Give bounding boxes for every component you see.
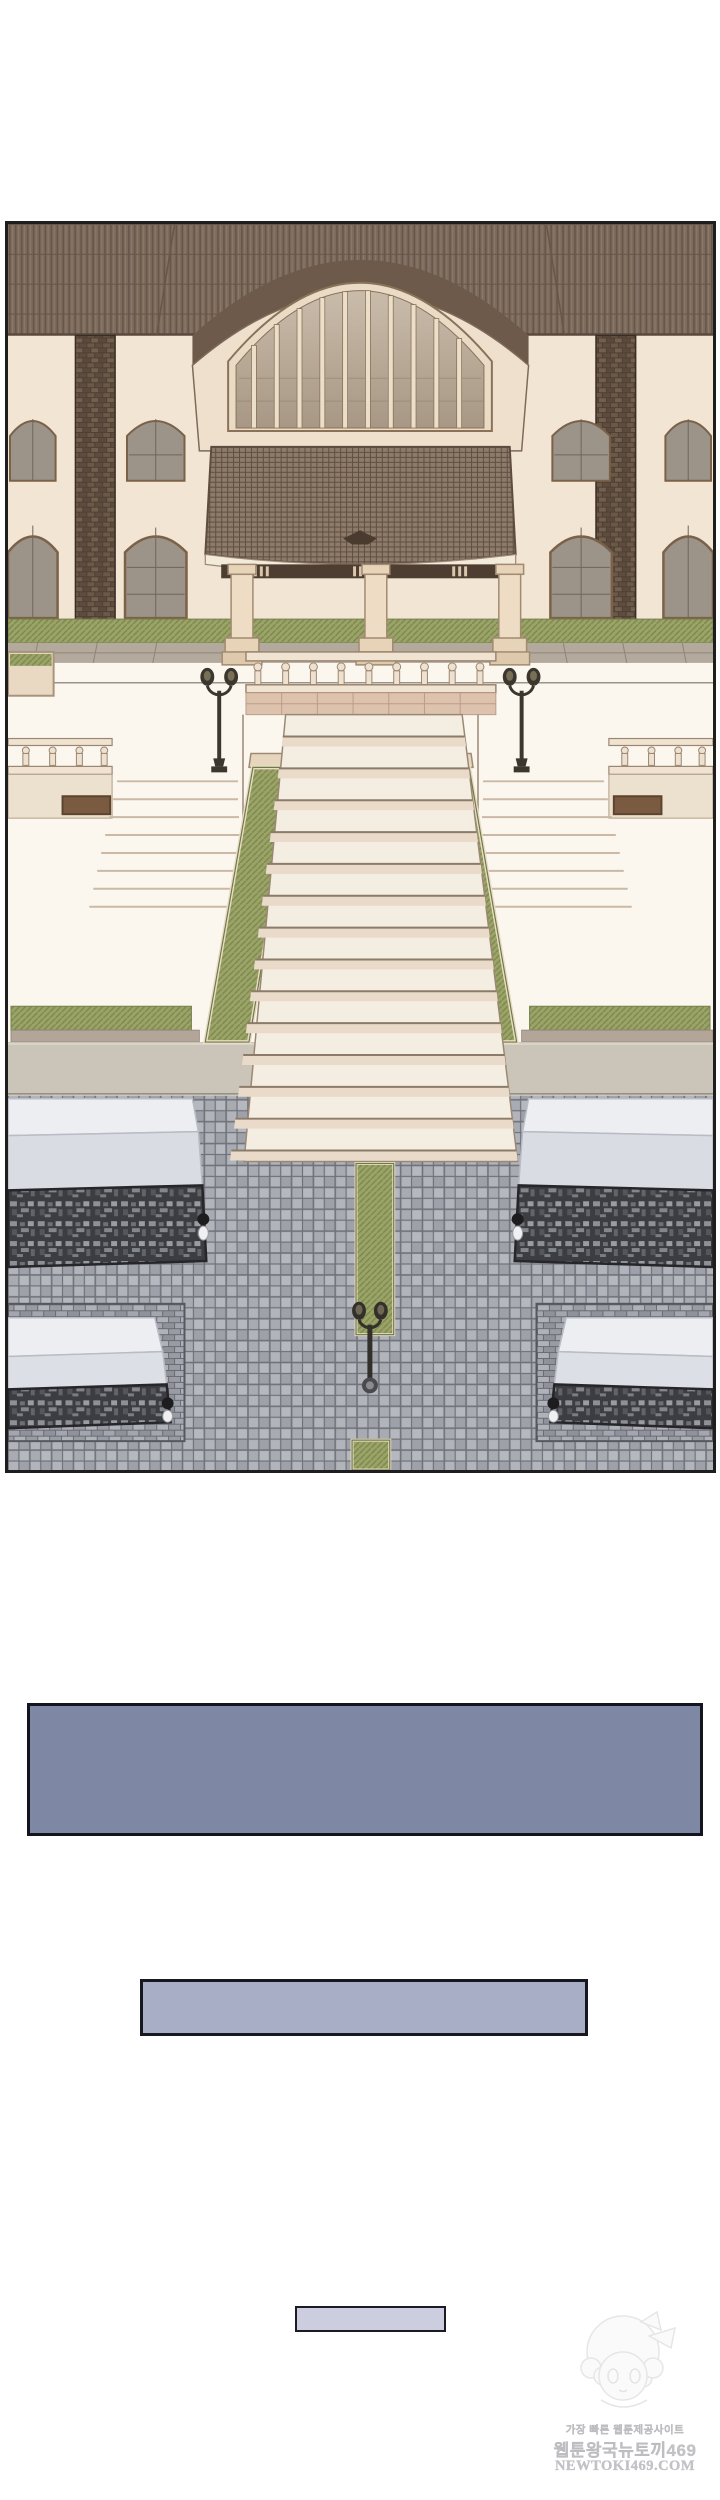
watermark-tagline: 가장 빠른 웹툰제공사이트 — [545, 2422, 705, 2437]
site-watermark: 가장 빠른 웹툰제공사이트 웹툰왕국뉴토끼469 NEWTOKI469.COM — [545, 2310, 710, 2490]
watermark-domain: NEWTOKI469.COM — [545, 2458, 705, 2475]
wooden-bench-left — [63, 796, 111, 814]
scene-box-large — [27, 1703, 703, 1836]
scene-box-small — [295, 2306, 446, 2332]
webtoon-page: { "panel": { "label": "courtyard-illustr… — [0, 0, 720, 2500]
watermark-mascot-art — [545, 2310, 705, 2430]
planter-bench-lower-left — [8, 1304, 184, 1441]
canopy-roof — [205, 447, 515, 564]
scene-box-medium — [140, 1979, 588, 2036]
wooden-bench-right — [614, 796, 662, 814]
planter-bench-upper-left — [8, 1099, 209, 1267]
planter-bench-lower-right — [537, 1304, 713, 1441]
planter-bench-upper-right — [512, 1099, 713, 1267]
planter-far-left — [8, 652, 54, 696]
brick-pilaster-left — [75, 335, 115, 620]
building-facade — [8, 224, 713, 663]
courtyard-scene — [8, 224, 713, 1470]
center-median-lower — [352, 1440, 390, 1470]
comic-panel — [5, 221, 716, 1473]
